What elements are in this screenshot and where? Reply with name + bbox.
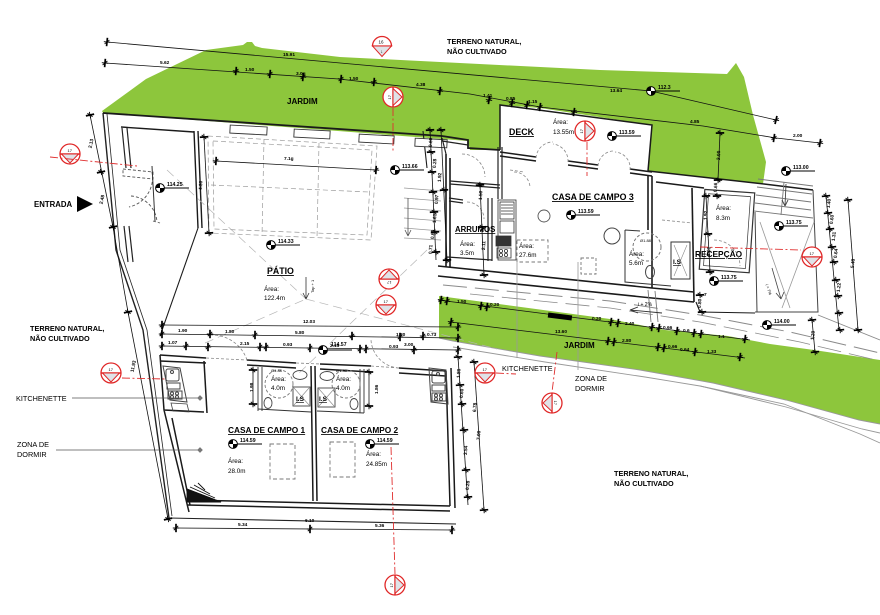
svg-text:0.28: 0.28	[432, 158, 438, 168]
svg-text:0.28: 0.28	[465, 480, 472, 490]
svg-text:Tap + 1: Tap + 1	[310, 279, 315, 293]
svg-text:2.11: 2.11	[481, 241, 487, 251]
svg-text:1.1: 1.1	[718, 334, 725, 340]
svg-text:Área:: Área:	[716, 203, 731, 212]
svg-text:1.50: 1.50	[349, 76, 359, 82]
svg-text:I.S: I.S	[319, 396, 328, 403]
svg-text:1.92: 1.92	[703, 210, 709, 220]
svg-text:0.20: 0.20	[490, 302, 500, 308]
svg-text:0.20: 0.20	[592, 316, 602, 322]
svg-text:Ø1.88: Ø1.88	[640, 238, 652, 243]
svg-text:1.31: 1.31	[831, 231, 838, 241]
svg-text:Área:: Área:	[336, 374, 351, 383]
svg-text:0.97: 0.97	[434, 194, 440, 204]
svg-text:0.71: 0.71	[428, 244, 434, 254]
svg-text:NÃO CULTIVADO: NÃO CULTIVADO	[30, 334, 90, 343]
svg-text:2.00: 2.00	[716, 150, 722, 160]
svg-text:CASA DE CAMPO 2: CASA DE CAMPO 2	[321, 425, 399, 435]
svg-text:3.5m: 3.5m	[460, 250, 474, 257]
svg-text:TERRENO NATURAL,: TERRENO NATURAL,	[614, 469, 688, 478]
svg-text:TERRENO NATURAL,: TERRENO NATURAL,	[30, 324, 104, 333]
svg-text:0.66: 0.66	[663, 325, 673, 331]
svg-text:1.50: 1.50	[245, 67, 255, 73]
svg-text:ZONA DE: ZONA DE	[575, 374, 607, 383]
svg-text:1.50: 1.50	[457, 299, 467, 305]
svg-text:113.00: 113.00	[793, 165, 809, 171]
svg-text:4.85: 4.85	[690, 119, 700, 125]
svg-text:0.93: 0.93	[283, 342, 293, 348]
svg-text:1.80: 1.80	[396, 332, 406, 338]
svg-text:7.1g: 7.1g	[284, 156, 294, 162]
svg-text:12.03: 12.03	[303, 319, 315, 325]
svg-text:Área:: Área:	[366, 449, 381, 458]
svg-text:1.98: 1.98	[249, 382, 255, 392]
svg-text:5.34: 5.34	[238, 522, 248, 528]
svg-text:4.0m: 4.0m	[336, 385, 350, 392]
svg-text:DORMIR: DORMIR	[17, 450, 47, 459]
svg-text:0.6: 0.6	[683, 328, 690, 334]
svg-text:28.0m: 28.0m	[228, 468, 246, 475]
svg-text:114.59: 114.59	[377, 438, 393, 444]
svg-text:114.57: 114.57	[331, 342, 347, 348]
svg-text:4.0m: 4.0m	[271, 385, 285, 392]
svg-text:1.86: 1.86	[374, 384, 380, 394]
svg-text:13.60: 13.60	[555, 329, 567, 335]
svg-text:113.59: 113.59	[578, 209, 594, 215]
svg-text:114.59: 114.59	[240, 438, 256, 444]
svg-text:Área:: Área:	[553, 117, 568, 126]
svg-text:1.61: 1.61	[432, 213, 438, 223]
svg-text:2.80: 2.80	[622, 338, 632, 344]
svg-text:CASA DE CAMPO 3: CASA DE CAMPO 3	[552, 192, 634, 202]
svg-text:JARDIM: JARDIM	[564, 341, 595, 350]
svg-text:PÁTIO: PÁTIO	[267, 266, 294, 276]
svg-text:3.0g: 3.0g	[296, 71, 306, 77]
svg-text:27.6m: 27.6m	[519, 252, 537, 259]
svg-text:15.91: 15.91	[283, 52, 295, 58]
svg-text:0.85: 0.85	[506, 96, 516, 102]
svg-text:4.38: 4.38	[416, 82, 426, 88]
svg-text:1.22: 1.22	[836, 282, 843, 292]
svg-text:CASA DE CAMPO 1: CASA DE CAMPO 1	[228, 425, 306, 435]
svg-text:7: 7	[704, 292, 707, 298]
svg-text:0.60: 0.60	[459, 388, 466, 398]
svg-text:1.92: 1.92	[437, 172, 443, 182]
svg-text:0.66: 0.66	[430, 229, 436, 239]
svg-text:1.07: 1.07	[168, 340, 178, 346]
svg-text:Ø1.88: Ø1.88	[271, 368, 283, 373]
svg-text:13.55m: 13.55m	[553, 129, 574, 136]
svg-text:113.75: 113.75	[786, 220, 802, 226]
svg-text:4.30: 4.30	[198, 180, 204, 190]
svg-text:112.3: 112.3	[658, 85, 671, 91]
svg-text:0.66: 0.66	[668, 344, 678, 350]
svg-text:1.80: 1.80	[225, 329, 235, 335]
svg-text:0.60: 0.60	[428, 137, 434, 147]
svg-text:1.33: 1.33	[707, 349, 717, 355]
svg-text:i + 2%: i + 2%	[638, 302, 653, 308]
svg-text:5.80: 5.80	[295, 330, 305, 336]
svg-text:6.10: 6.10	[305, 518, 315, 524]
svg-text:1.15: 1.15	[528, 99, 538, 105]
svg-text:JARDIM: JARDIM	[287, 97, 318, 106]
svg-text:ENTRADA: ENTRADA	[34, 200, 72, 209]
svg-text:7.00: 7.00	[476, 430, 483, 440]
svg-text:ZONA DE: ZONA DE	[17, 440, 49, 449]
svg-text:1.80: 1.80	[456, 368, 463, 378]
svg-text:0.80: 0.80	[697, 298, 703, 308]
svg-text:1.20: 1.20	[810, 330, 817, 340]
svg-text:1.41: 1.41	[483, 93, 493, 99]
svg-text:13.64: 13.64	[610, 88, 622, 94]
svg-text:113.75: 113.75	[721, 275, 737, 281]
svg-text:114.33: 114.33	[278, 239, 294, 245]
svg-text:122.4m: 122.4m	[264, 295, 285, 302]
svg-text:0.64: 0.64	[833, 248, 840, 258]
svg-text:24.85m: 24.85m	[366, 461, 387, 468]
svg-text:1.40: 1.40	[826, 198, 833, 208]
svg-text:2.00: 2.00	[793, 133, 803, 139]
svg-text:2.15: 2.15	[240, 341, 250, 347]
svg-text:I.S: I.S	[673, 259, 682, 266]
svg-text:5.62: 5.62	[160, 60, 170, 66]
svg-text:1.50: 1.50	[478, 190, 484, 200]
svg-text:3.54: 3.54	[463, 445, 470, 455]
svg-text:DORMIR: DORMIR	[575, 384, 605, 393]
svg-text:113.66: 113.66	[402, 164, 418, 170]
svg-text:Área:: Área:	[629, 249, 644, 258]
svg-text:5.36: 5.36	[375, 523, 385, 529]
svg-text:ARRUMOS: ARRUMOS	[455, 225, 495, 234]
svg-text:Área:: Área:	[519, 241, 534, 250]
svg-text:0.64: 0.64	[680, 347, 690, 353]
svg-text:5.48: 5.48	[850, 258, 857, 268]
svg-text:NÃO CULTIVADO: NÃO CULTIVADO	[614, 479, 674, 488]
svg-text:1.90: 1.90	[178, 328, 188, 334]
svg-text:2.40: 2.40	[625, 321, 635, 327]
svg-text:KITCHENETTE: KITCHENETTE	[16, 394, 67, 403]
svg-text:RECEPÇÃO: RECEPÇÃO	[695, 249, 743, 259]
svg-text:Área:: Área:	[228, 456, 243, 465]
svg-text:0.73: 0.73	[427, 332, 437, 338]
svg-text:DECK: DECK	[509, 127, 535, 137]
svg-text:5.6m: 5.6m	[629, 260, 643, 267]
svg-text:Área:: Área:	[264, 284, 279, 293]
svg-text:3.00: 3.00	[404, 342, 414, 348]
svg-text:114.00: 114.00	[774, 319, 790, 325]
svg-text:6.78: 6.78	[472, 402, 479, 412]
svg-text:0.93: 0.93	[389, 344, 399, 350]
svg-text:KITCHENETTE: KITCHENETTE	[502, 364, 553, 373]
svg-text:Ø1.88: Ø1.88	[336, 368, 348, 373]
svg-text:TERRENO NATURAL,: TERRENO NATURAL,	[447, 37, 521, 46]
svg-text:I.S: I.S	[296, 396, 305, 403]
svg-text:8.3m: 8.3m	[716, 215, 730, 222]
svg-text:0.60: 0.60	[829, 214, 836, 224]
svg-text:0.66: 0.66	[713, 182, 719, 192]
svg-text:Área:: Área:	[460, 239, 475, 248]
svg-text:114.25: 114.25	[167, 182, 183, 188]
svg-text:Área:: Área:	[271, 374, 286, 383]
svg-text:NÃO CULTIVADO: NÃO CULTIVADO	[447, 47, 507, 56]
svg-text:113.59: 113.59	[619, 130, 635, 136]
